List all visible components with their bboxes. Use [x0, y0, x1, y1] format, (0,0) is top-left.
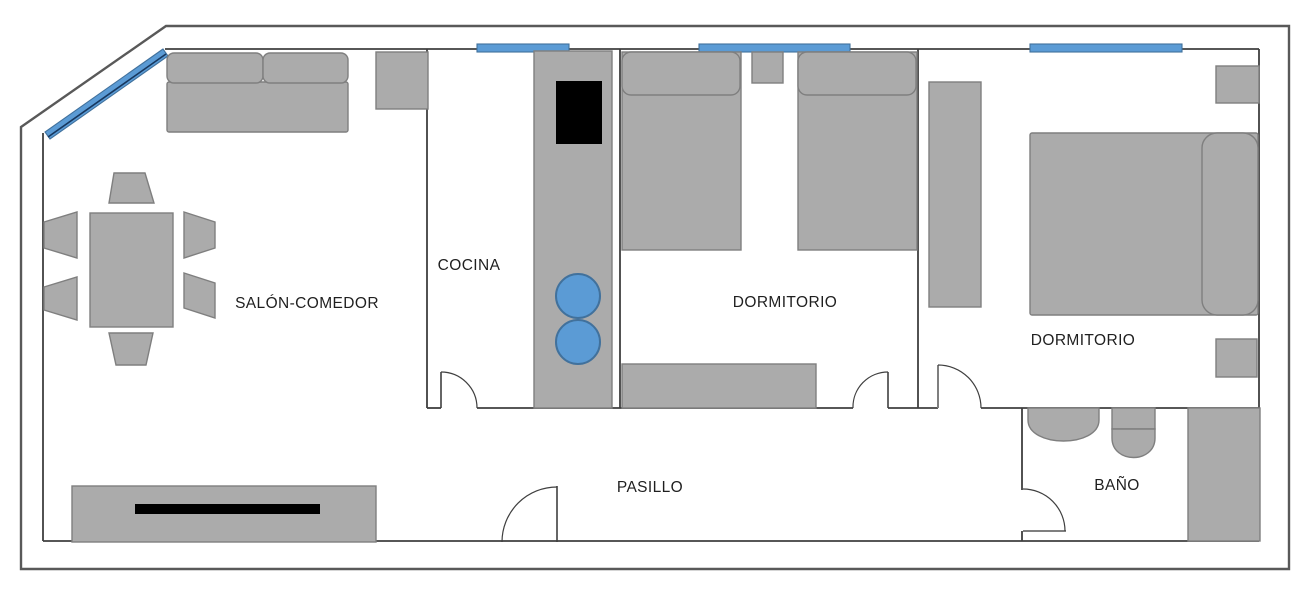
dorm2-door-swing: [938, 365, 981, 408]
dining-table: [90, 213, 173, 327]
room-label-dormitorio-1: DORMITORIO: [733, 294, 837, 312]
window-dorm1: [699, 44, 850, 52]
cocina-door-swing: [441, 372, 477, 408]
entry-door-swing: [502, 487, 557, 542]
dorm1-furniture: [622, 52, 917, 408]
room-label-pasillo: PASILLO: [617, 479, 683, 497]
floor-plan-canvas: SALÓN-COMEDOR COCINA DORMITORIO DORMITOR…: [0, 0, 1316, 596]
sofa-seat: [167, 82, 348, 132]
shower: [1188, 408, 1260, 541]
side-table: [376, 52, 428, 109]
dining-chair-bottom: [109, 333, 153, 365]
sofa-back-cushion-right: [263, 53, 348, 83]
dining-chair-right-1: [184, 212, 215, 258]
room-label-salon-comedor: SALÓN-COMEDOR: [235, 295, 379, 313]
kitchen-sink-basin-1: [556, 274, 600, 318]
kitchen-sink-basin-2: [556, 320, 600, 364]
window-dorm2: [1030, 44, 1182, 52]
bano-fixtures: [1028, 408, 1260, 541]
dining-chair-top: [109, 173, 154, 203]
cocina-furniture: [534, 51, 612, 408]
room-label-bano: BAÑO: [1094, 477, 1140, 495]
dining-chair-left-2: [44, 277, 77, 320]
dining-chair-left-1: [44, 212, 77, 258]
sofa-back-cushion-left: [167, 53, 263, 83]
tv-screen: [135, 504, 320, 514]
room-label-dormitorio-2: DORMITORIO: [1031, 332, 1135, 350]
nightstand-between-beds: [752, 52, 783, 83]
dorm1-dresser: [622, 364, 816, 408]
dorm2-nightstand-bottom: [1216, 339, 1257, 377]
dining-chair-right-2: [184, 273, 215, 318]
single-bed-2-pillow: [798, 52, 916, 95]
dorm1-door-swing: [853, 372, 888, 408]
wardrobe: [929, 82, 981, 307]
stove: [556, 81, 602, 144]
room-label-cocina: COCINA: [438, 257, 501, 275]
dorm2-nightstand-top: [1216, 66, 1259, 103]
floor-plan-drawing: [0, 0, 1316, 596]
bano-door-swing: [1023, 489, 1065, 531]
double-bed-pillow: [1202, 133, 1258, 315]
dorm2-furniture: [929, 66, 1259, 377]
toilet-bowl: [1112, 429, 1155, 458]
bathroom-sink: [1028, 408, 1099, 441]
toilet-tank: [1112, 408, 1155, 429]
single-bed-1-pillow: [622, 52, 740, 95]
